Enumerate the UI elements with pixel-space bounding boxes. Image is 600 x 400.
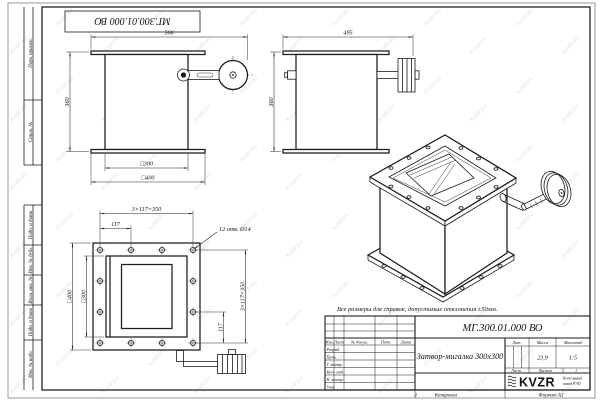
col-list: Лист	[333, 339, 344, 344]
sheets-value: 1	[575, 368, 577, 373]
dim-flange-inner: □300	[81, 289, 88, 303]
row-nachotd: Нач. отд.	[326, 370, 344, 375]
drawing-sheet: KVZR.RU KVZR.RU Перв. примен. Справ. № П…	[0, 0, 600, 400]
engineering-drawing: KVZR.RU KVZR.RU Перв. примен. Справ. № П…	[0, 0, 600, 400]
col-dokum: № докум.	[350, 339, 368, 344]
dim-side-height: 360	[268, 96, 275, 107]
row-prov: Пров.	[326, 355, 337, 360]
dim-hole-step-v: 117	[218, 322, 225, 332]
counterweight-edge	[398, 59, 415, 93]
row-utv: Утв.	[327, 385, 336, 390]
margin-field-inv-dubl: Инв. № дубл.	[28, 246, 34, 274]
dim-flange-outer: □400	[67, 289, 74, 303]
lit-label: Лит.	[511, 340, 521, 345]
company-name-line1: Котельный	[562, 376, 582, 381]
holes-note: 12 отв. Ø14	[219, 226, 251, 233]
dim-front-height: 360	[64, 96, 71, 107]
company-name-line2: завод РЭП	[562, 382, 581, 386]
mass-label: Масса	[536, 340, 549, 345]
sheet-label: Лист	[510, 368, 521, 373]
shaft-end-stub	[288, 71, 297, 79]
margin-field-perv-primen: Перв. примен.	[29, 38, 34, 69]
logo-text: KVZR	[519, 376, 555, 390]
scale-value: 1:5	[569, 356, 577, 362]
margin-field-podp-data-2: Подп. и дата	[29, 307, 34, 337]
dim-front-outer: □400	[141, 175, 155, 182]
dim-hole-pitch-h: 3×117=350	[131, 206, 162, 213]
col-data: Дата	[400, 339, 411, 344]
row-tkontr: Т. контр.	[327, 362, 343, 367]
dim-side-width: 495	[343, 29, 352, 36]
drawing-note: Все размеры для справок, допустимые откл…	[337, 306, 498, 313]
dim-hole-pitch-v: 3×117=350	[240, 281, 247, 312]
footer-sheet-mark: 1	[415, 394, 418, 399]
part-name: Затвор-мигалка 300х300	[417, 352, 504, 361]
footer-copied-label: Копировал	[434, 394, 457, 399]
footer-format-label: Формат А3	[539, 394, 564, 399]
mass-value: 23,9	[537, 356, 548, 362]
doc-number: МГ.300.01.000 ВО	[462, 323, 543, 334]
flange-opening	[122, 265, 173, 329]
scale-label: Масштаб	[563, 340, 583, 345]
dim-hole-step-h: 117	[111, 221, 121, 228]
col-podp: Подп.	[380, 339, 391, 344]
corner-doc-number: МГ.300.01.000 ВО	[94, 15, 171, 26]
sheets-label: Листов	[537, 368, 552, 373]
col-izm: Изм.	[324, 339, 333, 344]
margin-field-podp-data-1: Подп. и дата	[29, 210, 34, 240]
row-nkontr: Н. контр.	[326, 377, 344, 382]
margin-field-inv-podl: Инв. № подл.	[28, 350, 34, 379]
margin-field-sprav-no: Справ. №	[28, 122, 34, 143]
row-razrab: Разраб.	[326, 347, 340, 352]
dim-front-width: 566	[164, 29, 174, 36]
margin-field-vzam-inv: Взам. инв. №	[28, 276, 34, 304]
dim-front-inner: □300	[140, 161, 154, 168]
